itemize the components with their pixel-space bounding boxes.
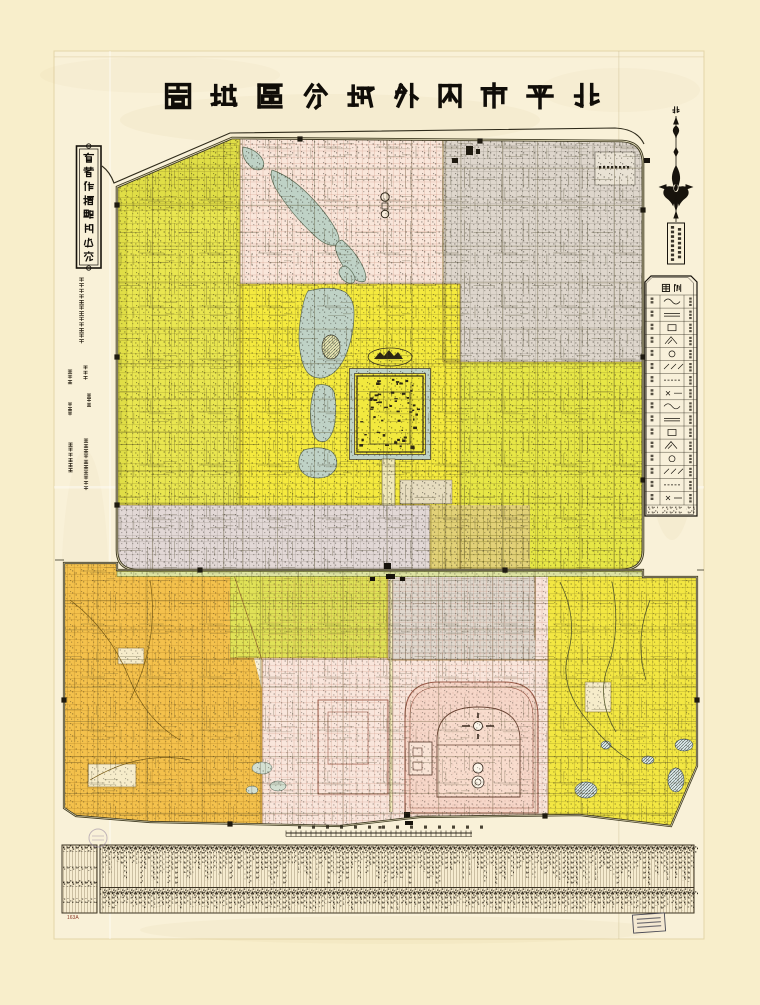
svg-text:163A: 163A bbox=[67, 915, 79, 921]
